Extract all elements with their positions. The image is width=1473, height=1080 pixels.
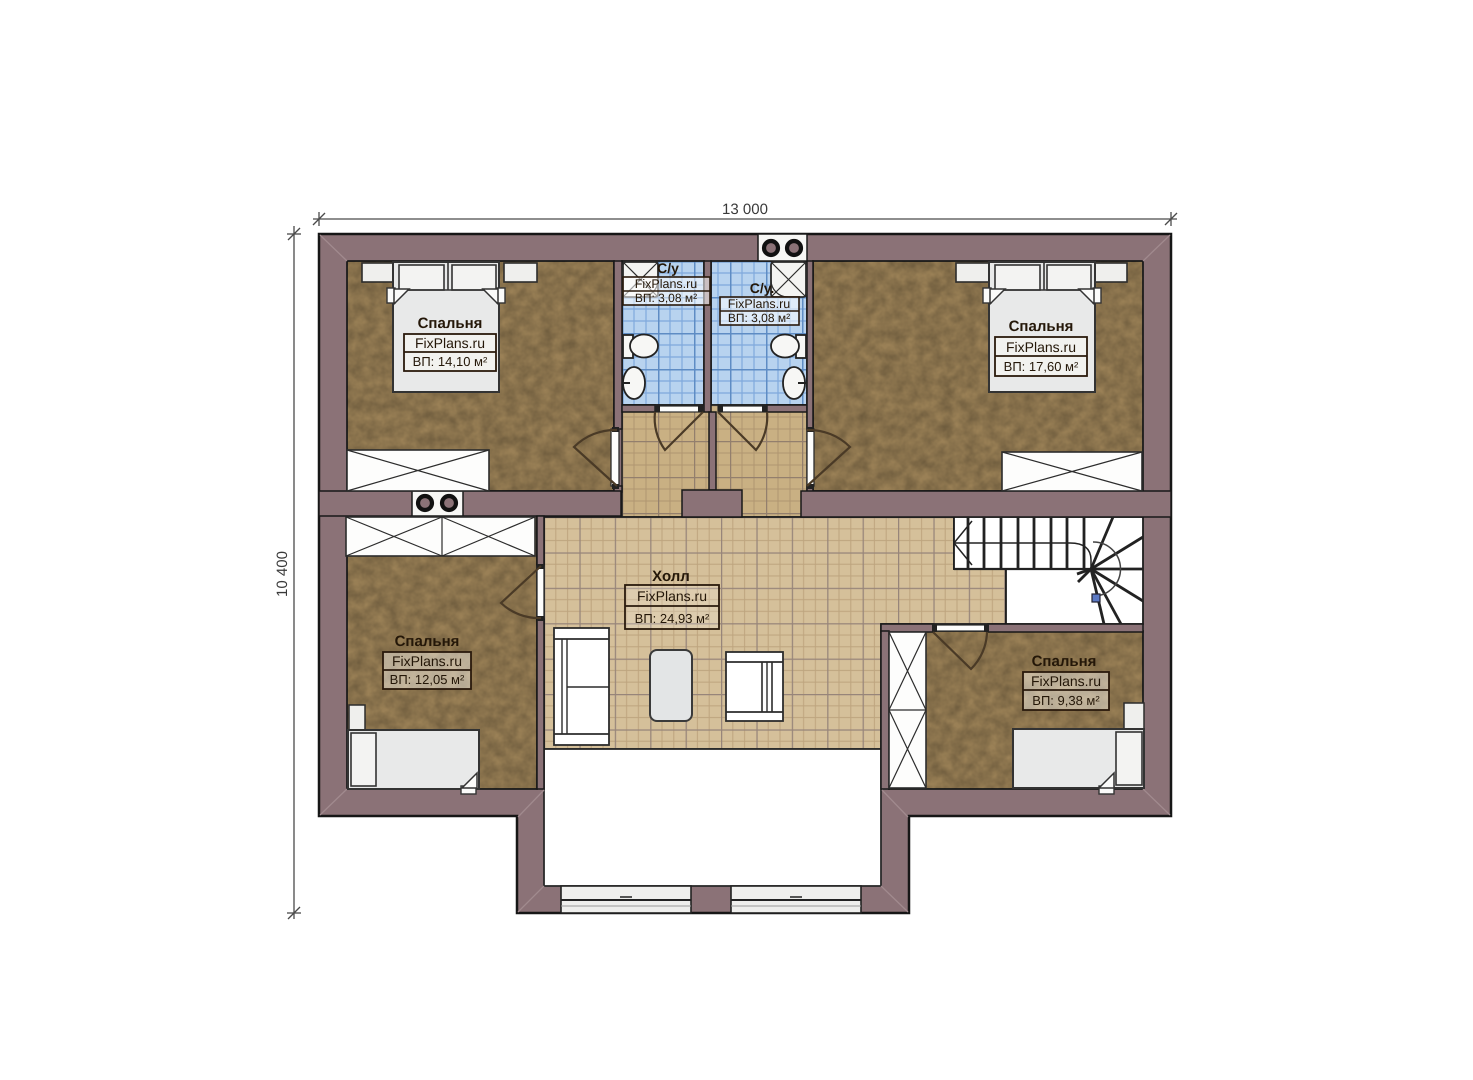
svg-text:ВП: 3,08 м²: ВП: 3,08 м² bbox=[635, 291, 697, 305]
svg-text:13 000: 13 000 bbox=[722, 201, 768, 218]
svg-text:FixPlans.ru: FixPlans.ru bbox=[637, 588, 707, 604]
svg-text:FixPlans.ru: FixPlans.ru bbox=[728, 297, 791, 311]
svg-text:10 400: 10 400 bbox=[274, 551, 291, 597]
svg-text:ВП: 3,08 м²: ВП: 3,08 м² bbox=[728, 311, 790, 325]
svg-text:С/у: С/у bbox=[657, 260, 679, 276]
svg-text:FixPlans.ru: FixPlans.ru bbox=[415, 335, 485, 351]
svg-text:С/у.: С/у. bbox=[750, 280, 774, 296]
svg-text:Спальня: Спальня bbox=[418, 315, 483, 332]
svg-text:FixPlans.ru: FixPlans.ru bbox=[635, 277, 698, 291]
svg-text:ВП: 14,10 м²: ВП: 14,10 м² bbox=[413, 354, 488, 369]
svg-text:ВП: 24,93 м²: ВП: 24,93 м² bbox=[635, 611, 710, 626]
svg-text:ВП: 12,05 м²: ВП: 12,05 м² bbox=[390, 672, 465, 687]
svg-text:Спальня: Спальня bbox=[1009, 318, 1074, 335]
svg-text:ВП: 17,60 м²: ВП: 17,60 м² bbox=[1004, 359, 1079, 374]
svg-text:Спальня: Спальня bbox=[1032, 653, 1097, 670]
svg-text:FixPlans.ru: FixPlans.ru bbox=[1006, 339, 1076, 355]
svg-text:FixPlans.ru: FixPlans.ru bbox=[392, 653, 462, 669]
svg-text:Холл: Холл bbox=[652, 568, 690, 585]
svg-text:FixPlans.ru: FixPlans.ru bbox=[1031, 673, 1101, 689]
svg-text:ВП: 9,38 м²: ВП: 9,38 м² bbox=[1032, 693, 1100, 708]
svg-text:Спальня: Спальня bbox=[395, 633, 460, 650]
